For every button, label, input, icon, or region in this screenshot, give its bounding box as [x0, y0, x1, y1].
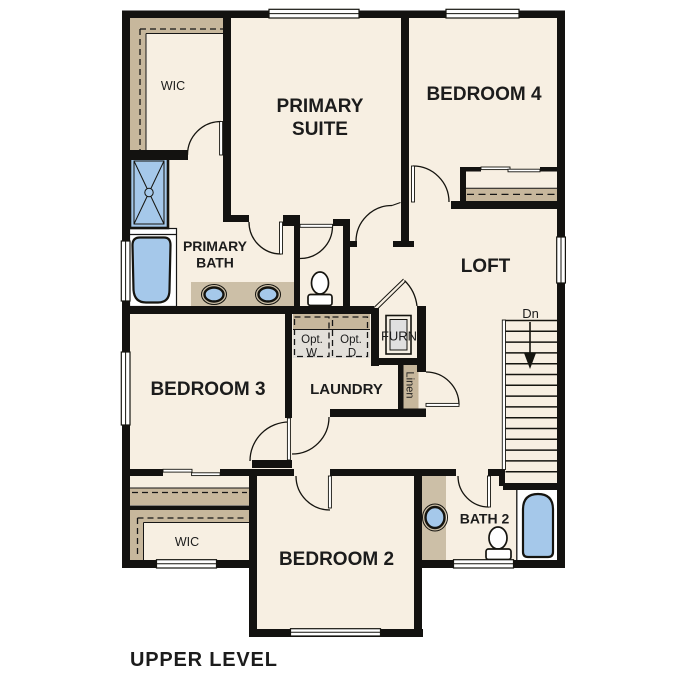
svg-text:BEDROOM 4: BEDROOM 4 [426, 84, 542, 105]
svg-text:Opt.: Opt. [340, 334, 362, 346]
svg-text:FURN: FURN [381, 329, 417, 344]
svg-text:PRIMARY: PRIMARY [183, 238, 248, 254]
svg-text:SUITE: SUITE [292, 119, 348, 140]
svg-text:Dn: Dn [522, 306, 539, 321]
svg-text:WIC: WIC [161, 79, 185, 93]
svg-text:BATH 2: BATH 2 [460, 511, 510, 527]
svg-text:LAUNDRY: LAUNDRY [310, 381, 383, 398]
svg-text:BATH: BATH [196, 255, 234, 271]
svg-text:UPPER LEVEL: UPPER LEVEL [130, 649, 278, 671]
svg-text:Linen: Linen [404, 372, 416, 399]
svg-text:PRIMARY: PRIMARY [277, 96, 364, 117]
svg-text:BEDROOM 2: BEDROOM 2 [279, 549, 394, 570]
svg-text:BEDROOM 3: BEDROOM 3 [150, 379, 265, 400]
svg-text:Opt.: Opt. [301, 334, 323, 346]
svg-text:WIC: WIC [175, 535, 199, 549]
svg-text:W: W [306, 348, 317, 360]
svg-text:LOFT: LOFT [461, 256, 511, 277]
svg-text:D: D [348, 348, 356, 360]
